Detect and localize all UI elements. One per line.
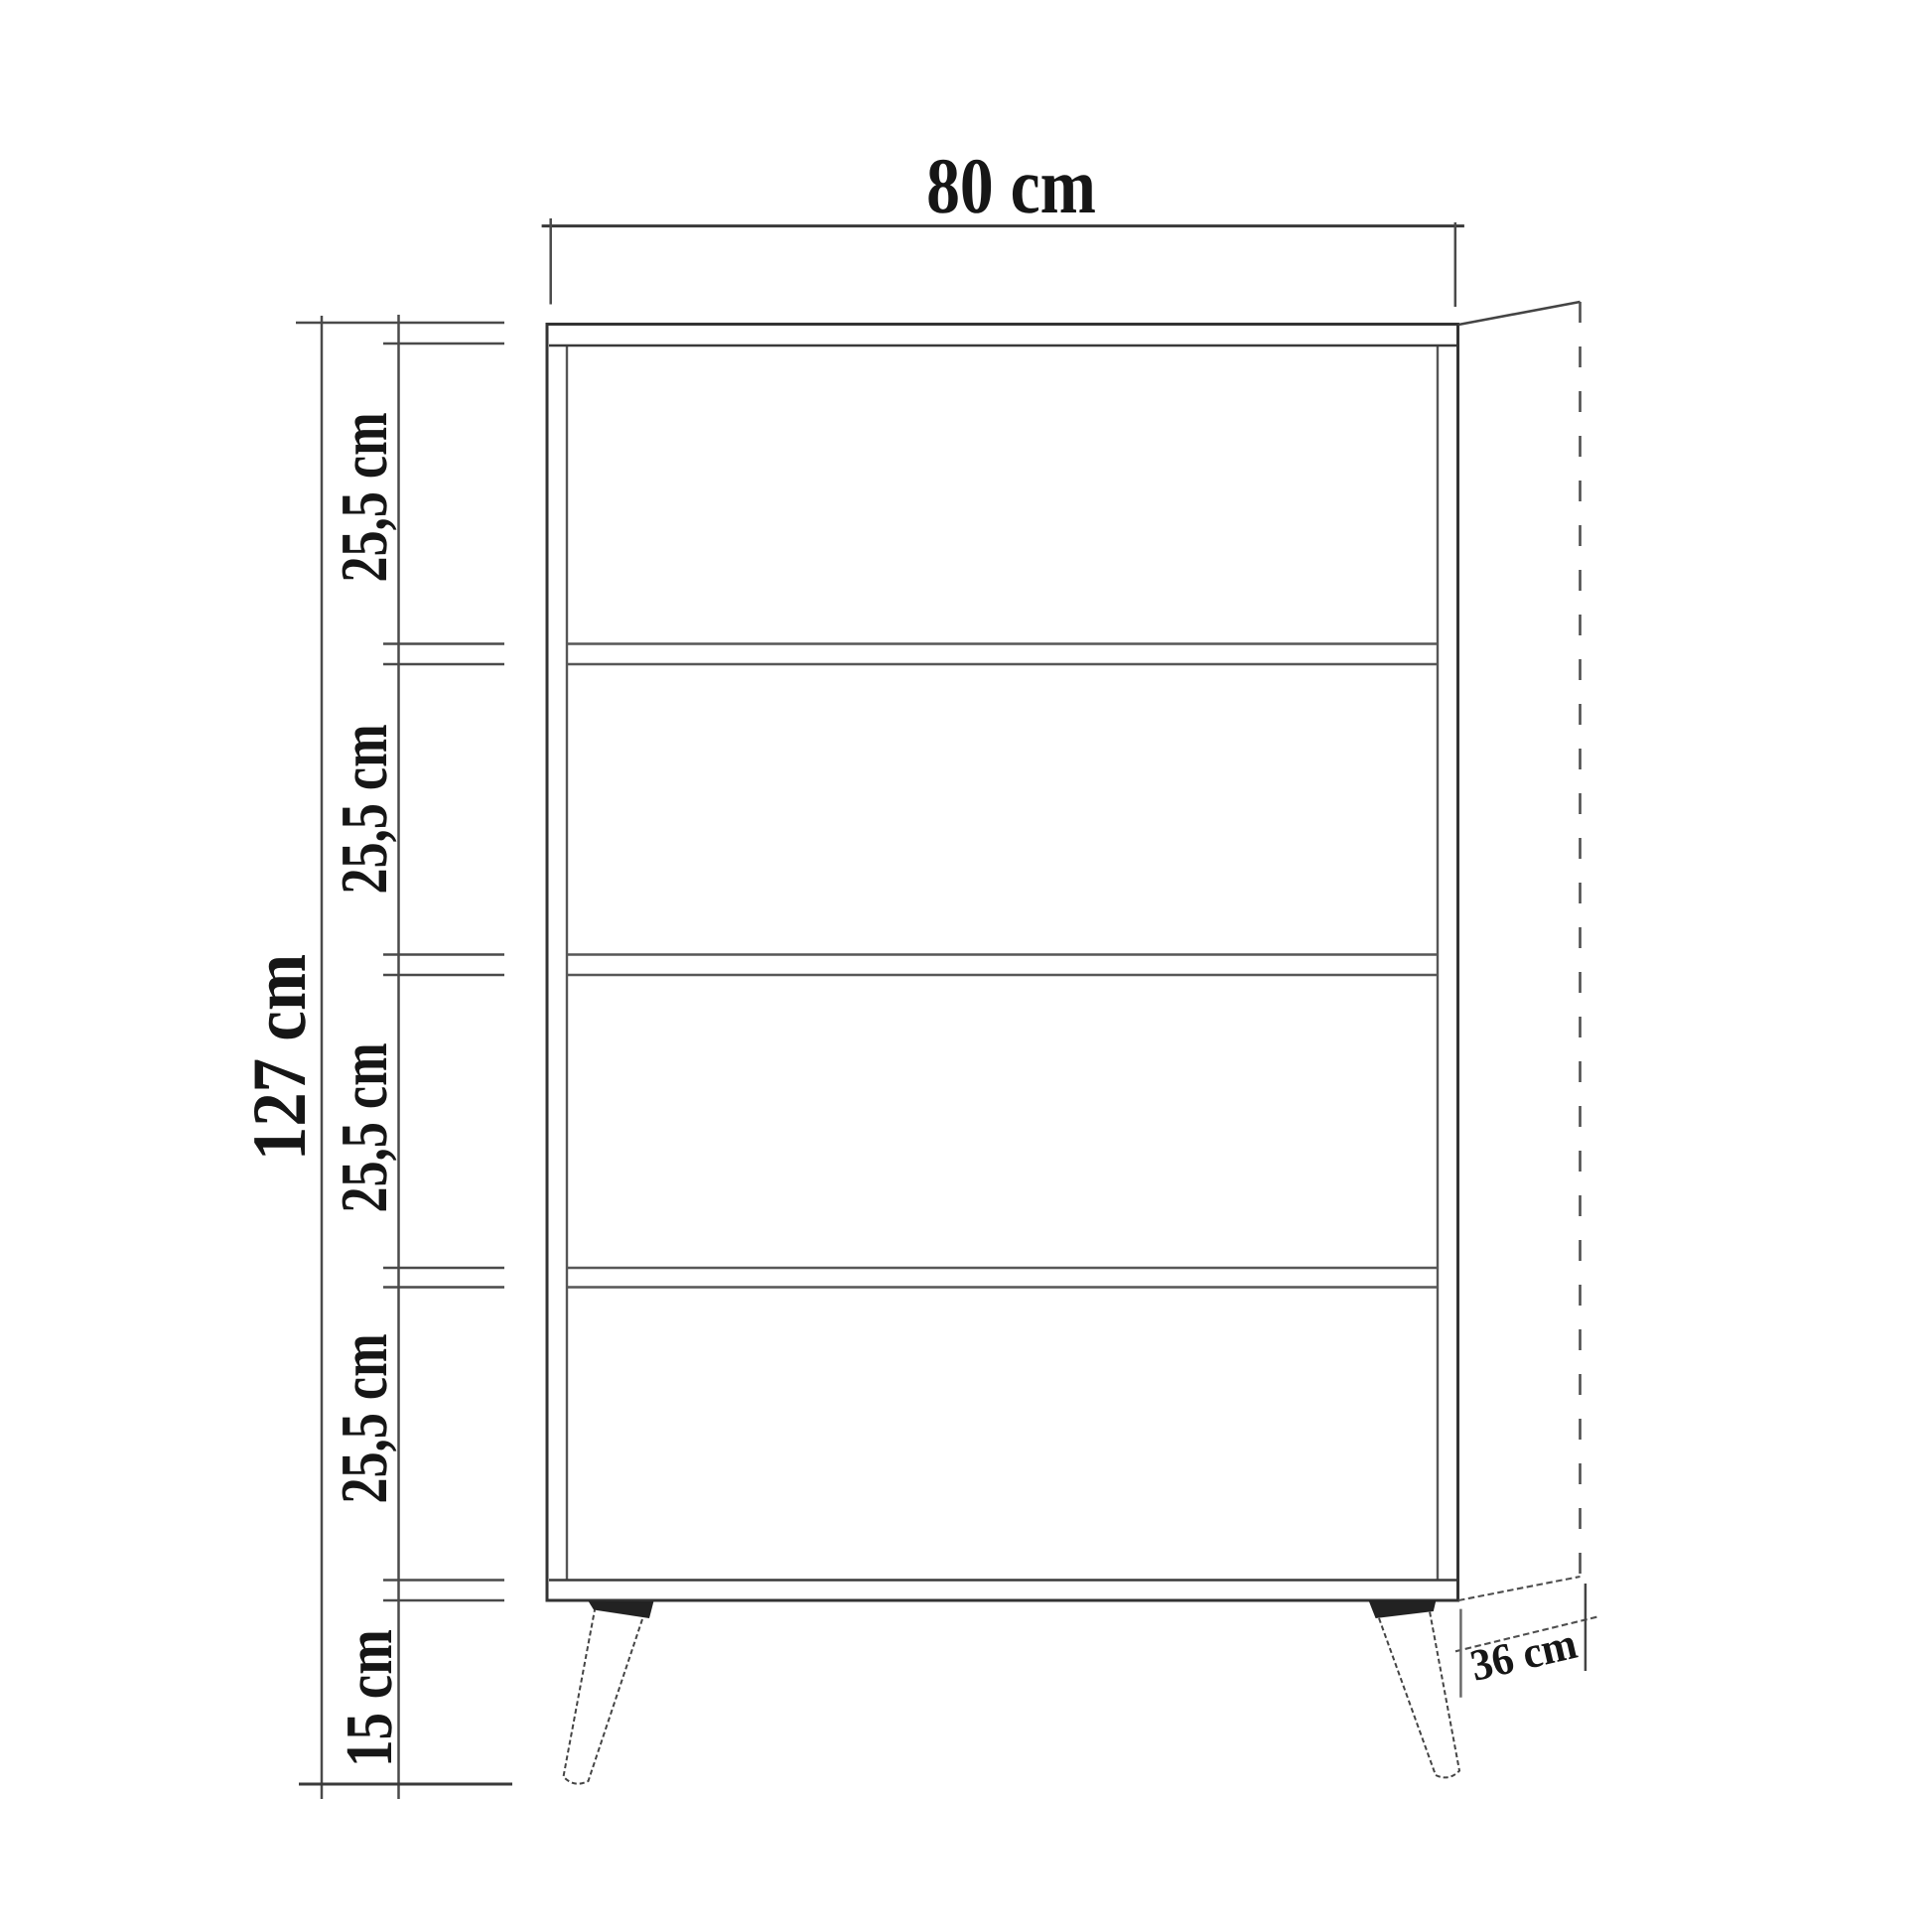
- svg-text:25,5 cm: 25,5 cm: [328, 724, 401, 894]
- svg-text:25,5 cm: 25,5 cm: [328, 1333, 401, 1503]
- svg-text:127 cm: 127 cm: [236, 954, 322, 1161]
- svg-text:15 cm: 15 cm: [333, 1629, 406, 1767]
- svg-text:25,5 cm: 25,5 cm: [328, 1042, 401, 1212]
- svg-text:25,5 cm: 25,5 cm: [328, 412, 401, 582]
- svg-text:80 cm: 80 cm: [926, 143, 1096, 230]
